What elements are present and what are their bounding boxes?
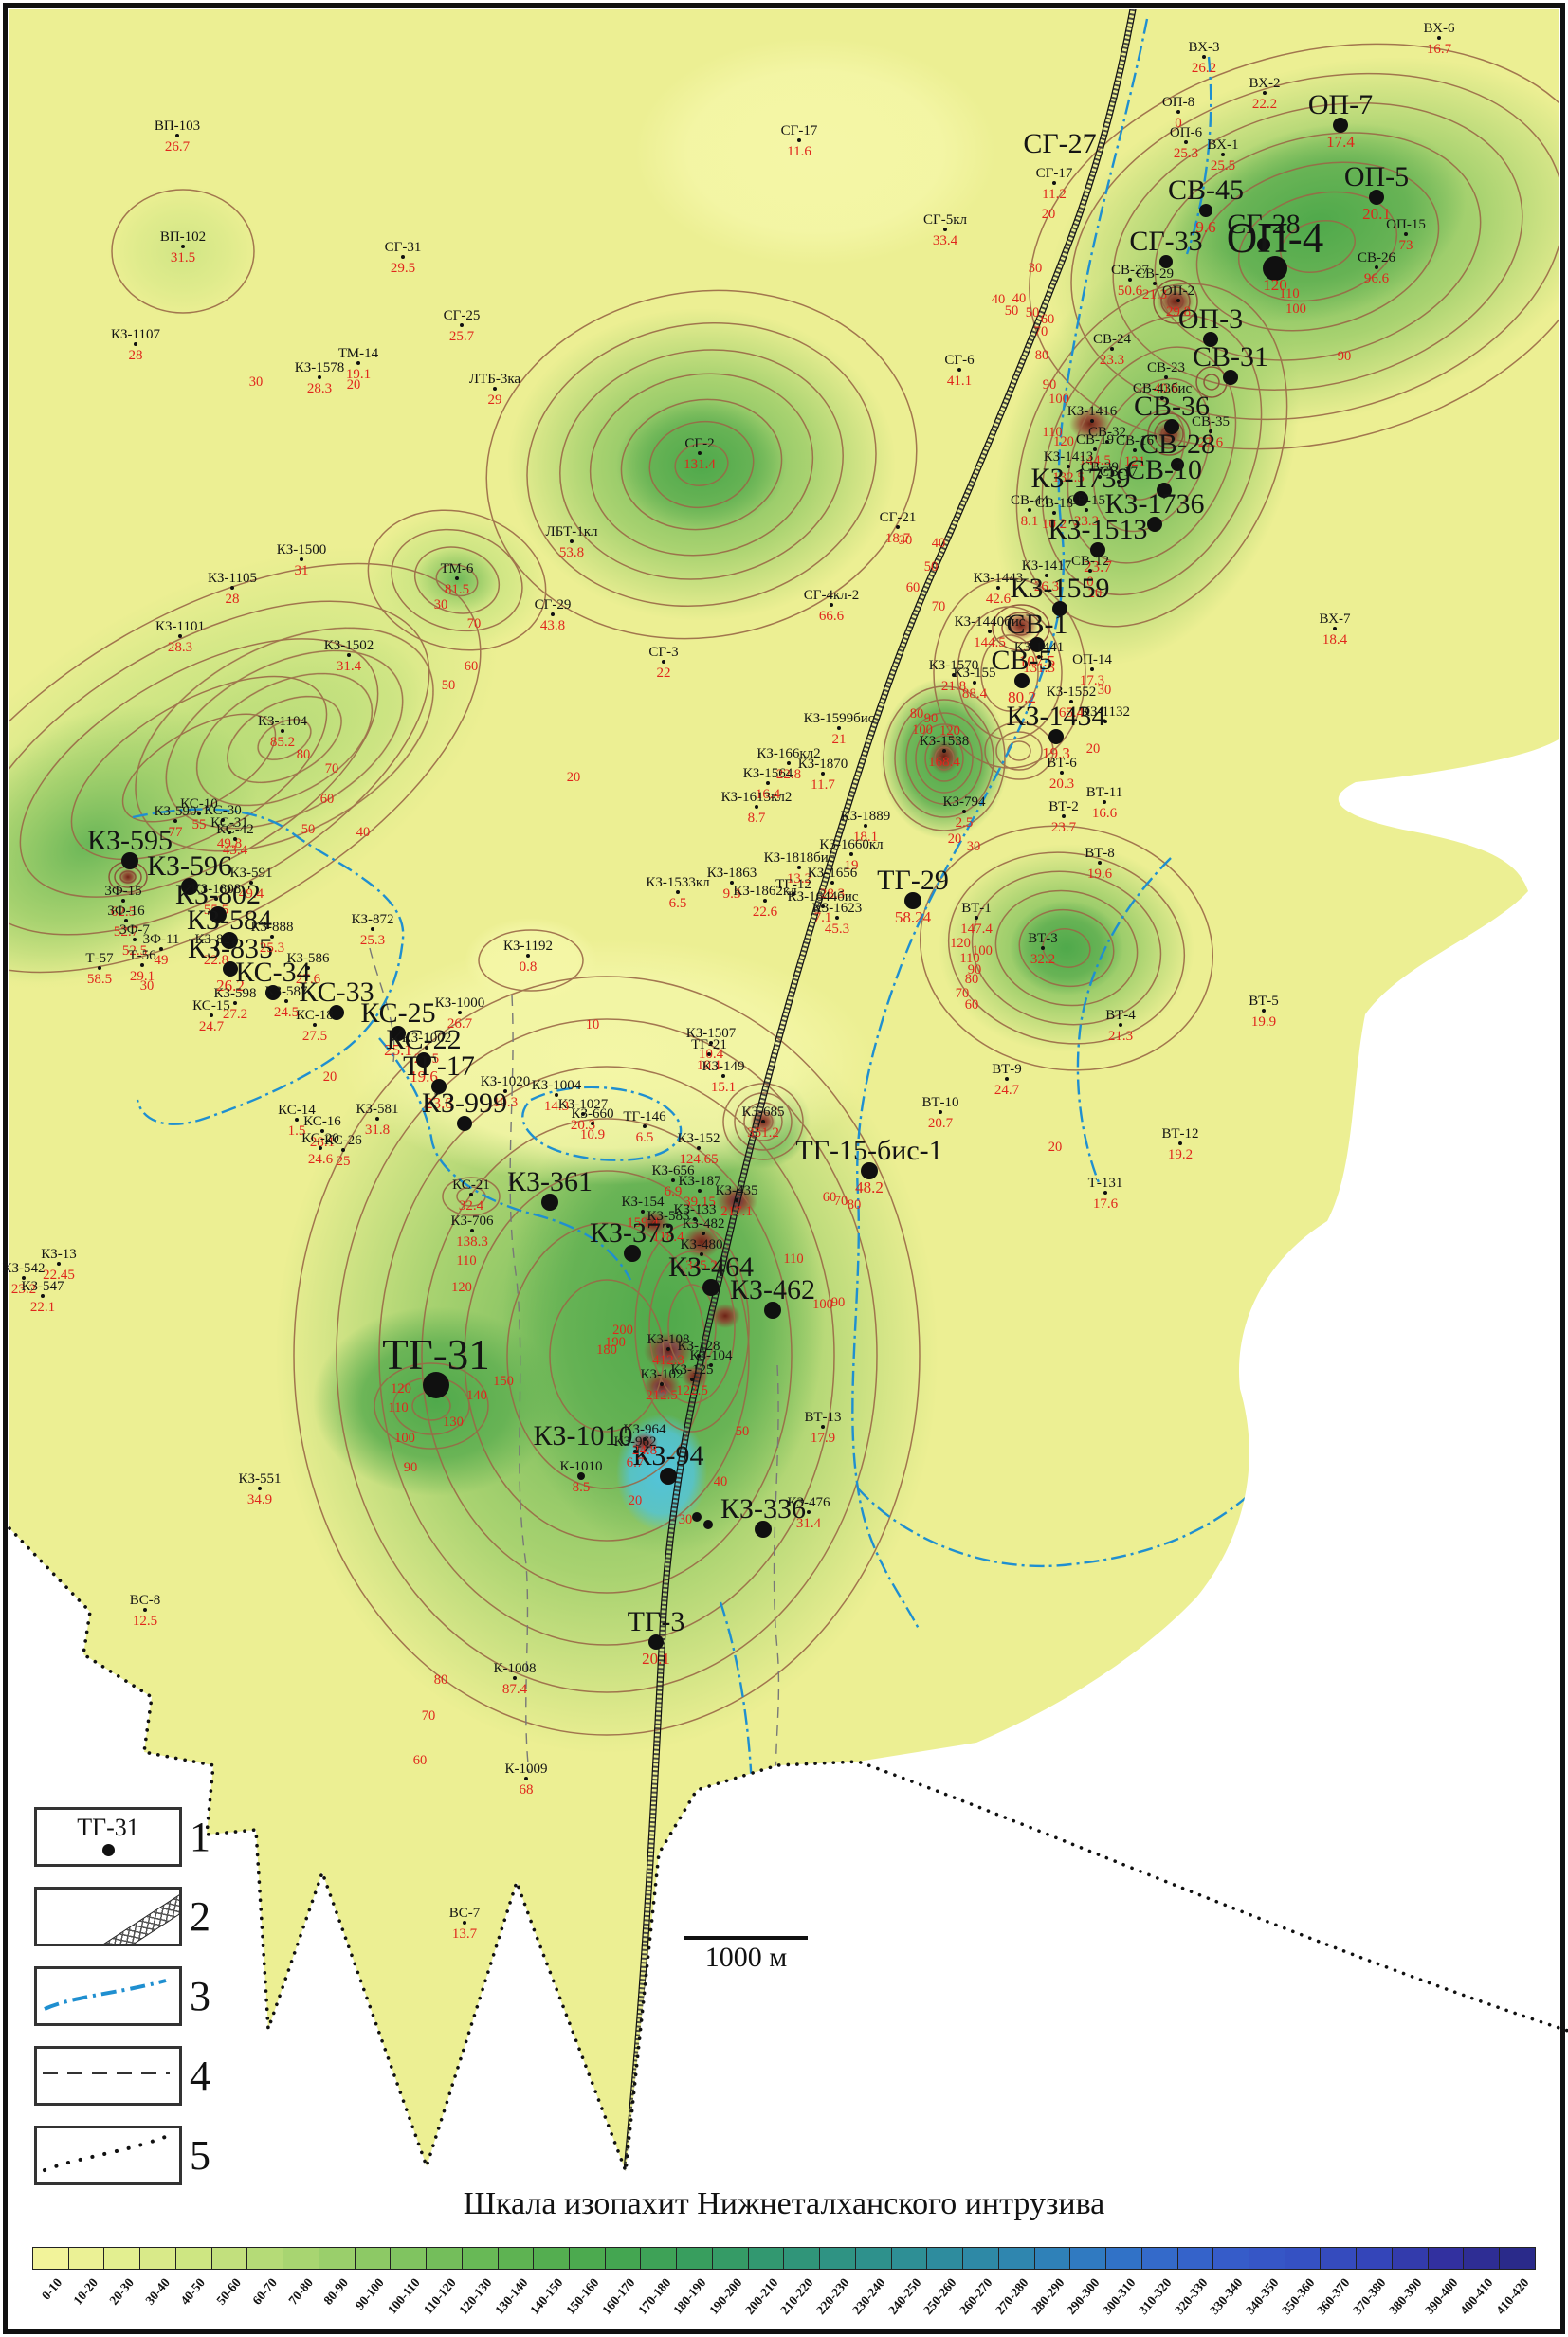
well-label: КЗ-1417 [1022, 559, 1072, 574]
well-label: ВТ-1 [961, 902, 991, 916]
well-dot-icon [493, 387, 497, 391]
well-dot-icon [375, 1117, 379, 1121]
well-thickness-value: 31 [295, 564, 309, 578]
contour-value-label: 150 [493, 1375, 514, 1389]
well-dot-icon [1119, 1023, 1122, 1027]
contour-value-label: 100 [1285, 302, 1306, 317]
well-dot-icon [939, 1110, 942, 1114]
well-label: 3Ф-16 [107, 904, 144, 919]
color-scale-cell: 350-360 [1285, 2248, 1322, 2269]
well-label: КЗ-999 [422, 1089, 507, 1118]
well-dot-icon [698, 1189, 702, 1193]
well-label: КЗ-1416 [1067, 405, 1118, 419]
well-label: ВТ-3 [1028, 932, 1057, 946]
well-dot-icon [1028, 508, 1031, 512]
well-label: К-1010 [560, 1460, 603, 1474]
well-label: ЛБТ-1кл [545, 525, 597, 539]
contour-value-label: 70 [834, 1195, 848, 1209]
contour-value-label: 90 [1043, 378, 1057, 393]
well-label: Т-131 [1088, 1177, 1123, 1191]
well-dot-icon [662, 660, 665, 664]
well-dot-icon [1060, 771, 1064, 775]
well-dot-icon [676, 890, 680, 894]
well-label: КЗ-706 [450, 1214, 493, 1229]
well-dot-icon [643, 1124, 647, 1128]
well-label: СГ-29 [535, 598, 572, 612]
well-dot-icon [1176, 110, 1180, 114]
well-dot-icon [318, 375, 321, 379]
well-label: ТГ-21 [691, 1038, 727, 1052]
well-thickness-value: 42.6 [986, 593, 1011, 607]
well-dot-icon [1062, 814, 1066, 818]
legend-item-blue-line: 3 [34, 1966, 210, 2026]
contour-value-label: 20 [1048, 1141, 1063, 1155]
well-label: СВ-45 [1168, 176, 1244, 205]
color-scale-cell: 130-140 [499, 2248, 535, 2269]
well-dot-icon [178, 634, 182, 638]
scale-bar-line [684, 1936, 808, 1940]
contour-value-label: 120 [391, 1382, 411, 1397]
well-dot-icon [121, 899, 125, 903]
well-thickness-value: 23.3 [1100, 354, 1124, 368]
well-dot-icon [1263, 91, 1267, 95]
well-label: ОП-3 [1178, 305, 1243, 334]
color-scale-cell: 250-260 [927, 2248, 963, 2269]
well-thickness-value: 24.7 [994, 1084, 1019, 1098]
well-dot-icon [1375, 265, 1378, 269]
well-thickness-value: 88.4 [962, 687, 987, 702]
well-label: ТГ-15-бис-1 [795, 1137, 942, 1165]
color-scale-cell: 40-50 [176, 2248, 212, 2269]
dotted-line-icon [37, 2128, 173, 2177]
well-thickness-value: 8.5 [573, 1481, 591, 1495]
contour-value-label: 140 [466, 1389, 487, 1403]
well-label: КЗ-872 [351, 913, 393, 927]
contour-value-label: 80 [434, 1673, 448, 1688]
color-scale-cell: 80-90 [319, 2248, 356, 2269]
color-scale-cell: 90-100 [356, 2248, 392, 2269]
well-thickness-value: 53.8 [559, 546, 584, 560]
well-thickness-value: 27.5 [302, 1030, 327, 1044]
well-dot-icon [797, 866, 801, 869]
well-thickness-value: 351.2 [747, 1126, 779, 1141]
well-label: КЗ-590 [154, 805, 196, 819]
well-dot-icon [210, 1013, 213, 1017]
well-label: К-1008 [494, 1662, 537, 1676]
well-label: КЗ-1192 [503, 940, 553, 954]
well-dot-icon [41, 1294, 45, 1298]
well-dot-icon [570, 539, 574, 543]
well-label: СГ-5кл [923, 213, 967, 228]
well-dot-icon [551, 612, 555, 616]
color-scale-cell: 0-10 [33, 2248, 69, 2269]
well-dot-icon [1404, 232, 1408, 236]
well-label: ВХ-6 [1424, 22, 1455, 36]
well-thickness-value: 41.1 [947, 374, 972, 389]
legend-well-label: ТГ-31 [37, 1814, 179, 1842]
well-label: ВХ-3 [1189, 41, 1220, 55]
color-scale-cell: 300-310 [1106, 2248, 1142, 2269]
color-scale-cell: 360-370 [1321, 2248, 1357, 2269]
contour-value-label: 50 [1026, 306, 1040, 320]
well-dot-icon [707, 1052, 711, 1056]
well-dot-icon [463, 1921, 466, 1925]
color-scale-cell: 370-380 [1357, 2248, 1393, 2269]
well-thickness-value: 16.6 [1092, 807, 1117, 821]
well-thickness-value: 68 [520, 1783, 534, 1798]
well-thickness-value: 32.4 [459, 1199, 483, 1214]
well-dot-icon [849, 852, 853, 856]
well-label: КЗ-104 [689, 1349, 732, 1363]
well-label: КЗ-361 [507, 1168, 593, 1196]
well-dot-icon [641, 1210, 645, 1214]
well-dot-icon [319, 1146, 322, 1150]
well-label: КЗ-1656 [808, 867, 858, 881]
well-thickness-value: 8.7 [748, 812, 766, 826]
well-thickness-value: 21.3 [1108, 1030, 1133, 1044]
well-label: СВ-19 [1076, 433, 1114, 447]
contour-value-label: 70 [467, 617, 482, 631]
color-scale-cell: 200-210 [749, 2248, 785, 2269]
color-scale-cell: 330-340 [1213, 2248, 1249, 2269]
well-label: ОП-14 [1072, 653, 1112, 667]
contour-value-label: 110 [456, 1254, 476, 1269]
well-dot-icon [455, 576, 459, 580]
well-dot-icon [134, 342, 137, 346]
well-label: СГ-3 [648, 646, 678, 660]
well-thickness-value: 2.5 [956, 816, 974, 831]
well-dot-icon [835, 916, 839, 920]
well-thickness-value: 17.6 [1093, 1197, 1118, 1212]
well-thickness-value: 25.5 [1211, 159, 1235, 173]
well-dot-icon [943, 228, 947, 231]
well-dot-icon [1117, 480, 1121, 484]
contour-value-label: 40 [932, 537, 946, 551]
well-dot-icon [1133, 448, 1137, 452]
well-thickness-value: 18.7 [885, 532, 910, 546]
well-dot-icon [633, 1450, 637, 1453]
contour-value-label: 20 [1086, 742, 1101, 757]
well-thickness-value: 212.5 [646, 1389, 678, 1403]
legend-item-dotted-line: 5 [34, 2126, 210, 2185]
well-label: СВ-23 [1147, 361, 1185, 375]
contour-value-label: 80 [965, 973, 979, 987]
well-thickness-value: 29.1 [130, 970, 155, 984]
well-label: КЗ-1564 [743, 767, 793, 781]
well-dot-icon [1153, 282, 1157, 285]
well-dot-icon [996, 586, 1000, 590]
well-label: КЗ-1101 [155, 620, 205, 634]
well-label: Т-57 [85, 952, 113, 966]
well-label: КС-42 [216, 823, 254, 837]
well-thickness-value: 15.1 [711, 1081, 736, 1095]
well-dot-icon [1437, 36, 1441, 40]
well-label: ВХ-1 [1208, 138, 1239, 153]
color-scale-cell: 100-110 [391, 2248, 427, 2269]
well-thickness-value: 28 [226, 593, 240, 607]
well-label: КЗ-1889 [841, 810, 891, 824]
well-thickness-value: 17.9 [811, 1432, 835, 1446]
well-label: КС-16 [303, 1115, 341, 1129]
well-label: ВТ-10 [922, 1096, 959, 1110]
color-scale-cell: 240-250 [892, 2248, 928, 2269]
well-dot-icon [735, 1198, 738, 1202]
well-dot-icon [837, 726, 841, 730]
well-dot-icon [57, 1262, 61, 1266]
well-label: КЗ-1623 [812, 902, 863, 916]
well-thickness-value: 28.3 [168, 641, 192, 655]
well-label: ТМ-14 [338, 347, 378, 361]
well-dot-icon [988, 630, 992, 633]
well-label: ТГ-17 [403, 1052, 475, 1081]
well-thickness-value: 96.6 [1364, 272, 1389, 286]
well-label: КЗ-149 [702, 1060, 744, 1074]
well-label: СГ-2 [684, 437, 714, 451]
well-dot-icon [962, 810, 966, 813]
well-thickness-value: 11.7 [811, 778, 835, 793]
contour-value-label: 90 [831, 1296, 846, 1310]
color-scale-cell: 120-130 [463, 2248, 499, 2269]
well-label: КЗ-1513 [1048, 516, 1147, 544]
legend-item-well: ТГ-31 1 [34, 1807, 210, 1867]
well-label: КЗ-596 [147, 852, 232, 881]
color-scale-cell: 390-400 [1429, 2248, 1465, 2269]
well-thickness-value: 120 [1263, 277, 1287, 293]
well-dot-icon [763, 899, 767, 903]
well-dot-icon [181, 245, 185, 248]
well-thickness-value: 34.9 [247, 1493, 272, 1507]
well-label: СВ-24 [1093, 333, 1131, 347]
well-label: КЗ-13 [41, 1248, 77, 1262]
contour-value-label: 80 [848, 1198, 862, 1213]
well-label: ВТ-13 [805, 1411, 842, 1425]
contour-value-label: 100 [1048, 393, 1069, 407]
well-dot-icon [371, 927, 374, 931]
well-thickness-value: 12.5 [133, 1615, 157, 1629]
well-thickness-value: 33.4 [933, 234, 957, 248]
well-label: КЗ-1533кл [646, 876, 709, 890]
contour-value-label: 60 [465, 660, 479, 674]
well-label: КЗ-155 [953, 666, 995, 681]
well-thickness-value: 8.1 [1021, 515, 1039, 529]
contour-value-label: 120 [451, 1281, 472, 1295]
well-dot-icon [721, 1074, 725, 1078]
well-label: ВТ-12 [1162, 1127, 1199, 1141]
well-label: КЗ-1104 [258, 715, 307, 729]
well-dot-icon [1199, 204, 1212, 217]
well-thickness-value: 17.4 [1326, 134, 1355, 150]
well-dot-icon [526, 954, 530, 958]
color-scale-cell: 60-70 [247, 2248, 283, 2269]
well-label: ТГ-31 [382, 1334, 490, 1377]
well-thickness-value: 50.6 [1118, 284, 1142, 299]
well-thickness-value: 11.6 [787, 145, 811, 159]
well-dot-icon [356, 361, 360, 365]
well-thickness-value: 0.8 [520, 960, 538, 975]
well-dot-icon [698, 451, 702, 455]
scale-bar: 1000 м [684, 1936, 808, 1974]
well-thickness-value: 25.3 [360, 934, 385, 948]
well-label: КЗ-685 [741, 1105, 784, 1120]
well-dot-icon [1098, 861, 1102, 865]
well-thickness-value: 58.5 [87, 973, 112, 987]
well-label: КЗ-581 [356, 1103, 398, 1117]
well-label: КЗ-547 [21, 1280, 64, 1294]
well-thickness-value: 26.7 [165, 140, 190, 155]
well-label: ТГ-146 [623, 1110, 665, 1124]
contour-value-label: 60 [906, 581, 921, 595]
well-thickness-value: 25.3 [1174, 147, 1198, 161]
well-dot-icon [697, 1146, 701, 1150]
well-label: КЗ-373 [590, 1219, 675, 1248]
well-label: СГ-4кл-2 [804, 589, 859, 603]
well-label: К-1009 [505, 1762, 548, 1777]
well-label: 3Ф-11 [143, 933, 180, 947]
well-label: ОП-7 [1308, 91, 1373, 119]
contour-value-label: 120 [950, 937, 971, 951]
well-label: СГ-25 [444, 309, 481, 323]
well-label: ОП-4 [1227, 217, 1323, 260]
well-label: СГ-21 [880, 511, 917, 525]
well-label: ОП-6 [1170, 126, 1202, 140]
well-dot-icon [1090, 667, 1094, 671]
well-label: КЗ-1004 [532, 1079, 582, 1093]
well-label: КЗ-1559 [1010, 575, 1109, 603]
well-label: КЗ-1107 [111, 328, 160, 342]
well-label: КЗ-336 [720, 1495, 806, 1524]
well-dot-icon [233, 837, 237, 841]
color-scale-cell: 220-230 [820, 2248, 856, 2269]
color-scale-cell: 230-240 [856, 2248, 892, 2269]
scale-bar-label: 1000 м [684, 1942, 808, 1974]
well-label: КЗ-133 [673, 1203, 716, 1217]
color-scale-cell: 180-190 [677, 2248, 713, 2269]
well-thickness-value: 31.4 [337, 660, 361, 674]
well-dot-icon [1262, 1009, 1266, 1013]
well-thickness-value: 21 [832, 733, 847, 747]
legend-symbol-blue-line [34, 1966, 182, 2026]
well-label: ВХ-2 [1249, 77, 1281, 91]
well-label: ВС-8 [130, 1594, 161, 1608]
well-label: КЗ-551 [238, 1472, 281, 1487]
contour-value-label: 70 [325, 762, 339, 776]
contour-value-label: 90 [404, 1461, 418, 1475]
well-label: КЗ-1552 [1047, 685, 1097, 700]
well-label: КЗ-1500 [277, 543, 327, 557]
contour-value-label: 100 [394, 1432, 415, 1446]
contour-value-label: 80 [1035, 349, 1049, 363]
contour-value-label: 50 [924, 560, 939, 575]
well-label: ТМ-6 [441, 562, 474, 576]
well-dot-icon [660, 1382, 664, 1386]
well-dot-icon [401, 255, 405, 259]
contour-value-label: 30 [1029, 262, 1043, 276]
well-thickness-value: 131.4 [684, 458, 716, 472]
contour-value-label: 50 [1005, 304, 1019, 319]
contour-value-label: 20 [323, 1070, 337, 1085]
well-label: КЗ-154 [621, 1196, 664, 1210]
well-dot-icon [591, 1122, 594, 1125]
well-thickness-value: 6.5 [669, 897, 687, 911]
well-label: ВП-103 [155, 119, 200, 134]
well-label: СВ-15 [1067, 494, 1105, 508]
well-dot-icon [1052, 181, 1056, 185]
well-dot-icon [295, 1118, 299, 1122]
well-dot-icon [159, 947, 163, 951]
well-dot-icon [821, 772, 825, 776]
well-label: КЗ-1538 [920, 735, 970, 749]
well-thickness-value: 19.2 [1168, 1148, 1193, 1162]
well-dot-icon [692, 1512, 702, 1522]
contour-value-label: 20 [629, 1494, 643, 1508]
well-thickness-value: 87.4 [502, 1683, 527, 1697]
well-dot-icon [347, 653, 351, 657]
well-label: КС-18 [296, 1009, 334, 1023]
well-label: КЗ-888 [250, 921, 293, 935]
well-label: ОП-2 [1162, 284, 1194, 299]
color-scale-cell: 150-160 [570, 2248, 606, 2269]
well-label: 3Ф-15 [104, 885, 141, 899]
well-thickness-value: 25.7 [449, 330, 474, 344]
well-dot-icon [957, 368, 961, 372]
well-dot-icon [133, 938, 137, 941]
well-label: КЗ-542 [2, 1262, 45, 1276]
well-label: ВТ-8 [1085, 847, 1114, 861]
well-dot-icon [1221, 153, 1225, 156]
well-dot-icon [470, 1229, 474, 1232]
well-label: СВ-29 [1136, 267, 1174, 282]
color-scale-cell: 110-120 [427, 2248, 463, 2269]
isopach-map-canvas [0, 0, 1568, 2337]
well-label: КЗ-1863 [707, 867, 757, 881]
well-dot-icon [797, 138, 801, 142]
legend-symbol-dashed-line [34, 2046, 182, 2106]
well-dot-icon [1090, 419, 1094, 423]
legend-number: 3 [190, 1976, 210, 2017]
well-thickness-value: 16.7 [1427, 43, 1451, 57]
well-thickness-value: 23.7 [1051, 821, 1076, 835]
well-dot-icon [1103, 1191, 1107, 1195]
well-dot-icon [807, 1510, 811, 1514]
well-label: КЗ-1502 [324, 639, 374, 653]
contour-value-label: 180 [596, 1343, 617, 1358]
well-label: ВТ-4 [1105, 1009, 1135, 1023]
well-dot-icon [175, 134, 179, 137]
contour-value-label: 100 [972, 944, 993, 959]
well-thickness-value: 29.5 [391, 262, 415, 276]
well-label: ВС-7 [449, 1907, 481, 1921]
well-thickness-value: 73 [1399, 239, 1413, 253]
well-thickness-value: 66.6 [819, 610, 844, 624]
color-scale-cell: 140-150 [534, 2248, 570, 2269]
well-label: ТГ-3 [628, 1608, 685, 1636]
legend-item-dashed-line: 4 [34, 2046, 210, 2106]
well-thickness-value: 85.2 [270, 736, 295, 750]
well-thickness-value: 20.1 [642, 1651, 670, 1667]
well-dot-icon [284, 999, 288, 1003]
color-scale-cell: 410-420 [1500, 2248, 1535, 2269]
well-thickness-value: 48.2 [855, 1179, 884, 1196]
color-scale-cell: 310-320 [1142, 2248, 1178, 2269]
contour-value-label: 30 [967, 840, 981, 854]
dashed-line-icon [37, 2049, 173, 2097]
well-thickness-value: 20.7 [928, 1117, 953, 1131]
contour-value-label: 90 [1338, 350, 1352, 364]
legend-number: 1 [190, 1817, 210, 1858]
legend-symbol-fault [34, 1887, 182, 1946]
legend-item-fault: 2 [34, 1887, 210, 1946]
well-dot-icon [1202, 55, 1206, 59]
